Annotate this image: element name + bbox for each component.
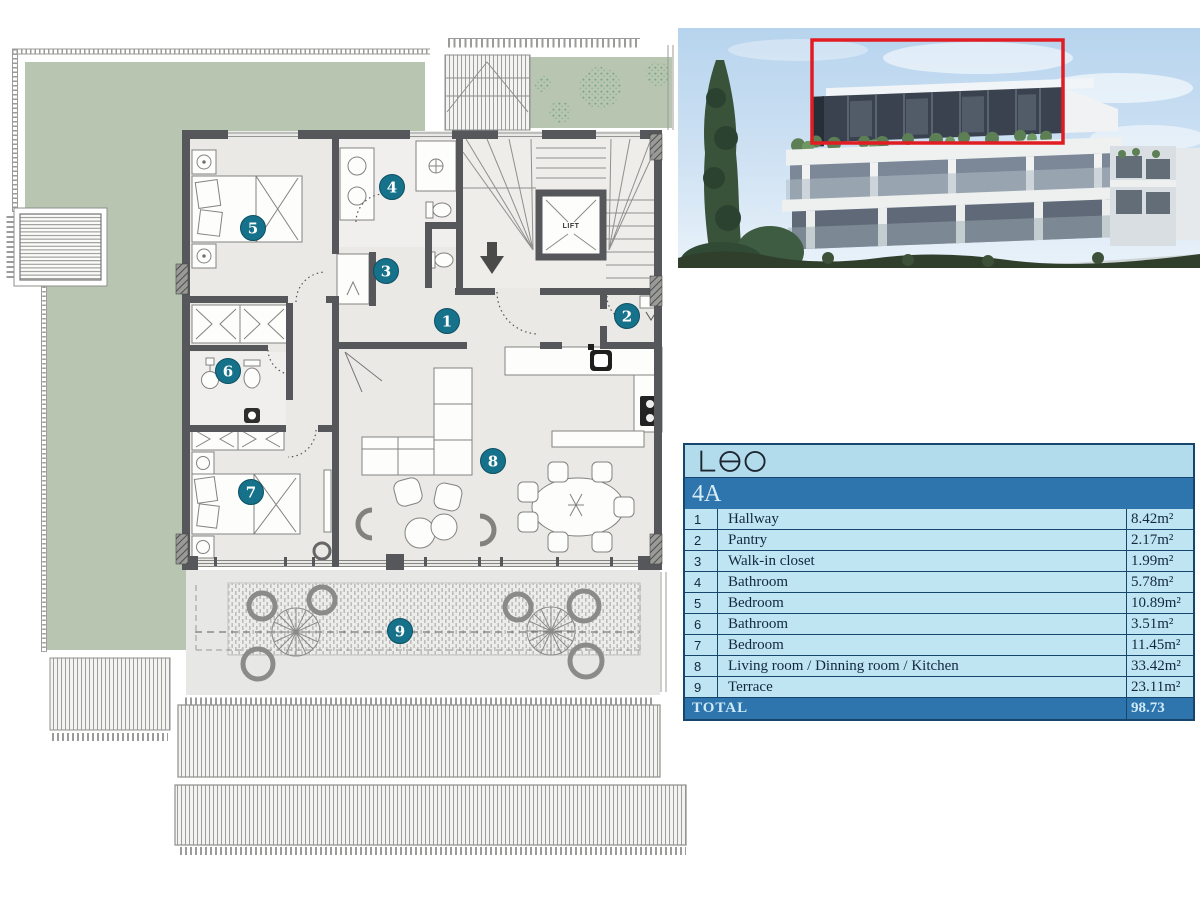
room-row: 1 Hallway 8.42m²: [685, 509, 1193, 530]
room-marker-number: 1: [442, 313, 452, 331]
room-name: Walk-in closet: [718, 551, 1126, 571]
unit-legend-table: 4A 1 Hallway 8.42m² 2 Pantry 2.17m² 3 Wa…: [683, 443, 1195, 721]
left-deck-band: [50, 658, 170, 737]
total-row: TOTAL 98.73: [685, 698, 1193, 719]
room-rows: 1 Hallway 8.42m² 2 Pantry 2.17m² 3 Walk-…: [685, 509, 1193, 698]
building: [782, 76, 1140, 250]
room-area: 8.42m²: [1126, 509, 1193, 529]
unit-label: 4A: [685, 478, 1193, 509]
room-marker-number: 4: [387, 179, 397, 197]
room-number: 3: [685, 551, 718, 571]
total-value: 98.73: [1126, 698, 1193, 719]
room-area: 10.89m²: [1126, 593, 1193, 613]
room-name: Bedroom: [718, 635, 1126, 655]
trellis: [445, 55, 530, 130]
room-number: 7: [685, 635, 718, 655]
room-row: 6 Bathroom 3.51m²: [685, 614, 1193, 635]
room-marker-number: 2: [622, 308, 632, 326]
room-area: 33.42m²: [1126, 656, 1193, 676]
pergola-bands: [175, 701, 686, 851]
room-number: 9: [685, 677, 718, 697]
room-number: 1: [685, 509, 718, 529]
room-row: 4 Bathroom 5.78m²: [685, 572, 1193, 593]
room-number: 6: [685, 614, 718, 634]
room-name: Pantry: [718, 530, 1126, 550]
room-area: 1.99m²: [1126, 551, 1193, 571]
room-marker-number: 7: [246, 484, 256, 502]
room-row: 9 Terrace 23.11m²: [685, 677, 1193, 698]
room-name: Terrace: [718, 677, 1126, 697]
room-marker-number: 6: [223, 363, 233, 381]
room-name: Bathroom: [718, 572, 1126, 592]
room-row: 8 Living room / Dinning room / Kitchen 3…: [685, 656, 1193, 677]
room-area: 11.45m²: [1126, 635, 1193, 655]
room-number: 2: [685, 530, 718, 550]
room-number: 4: [685, 572, 718, 592]
terrace-9: [186, 570, 660, 695]
room-name: Hallway: [718, 509, 1126, 529]
room-marker-number: 9: [395, 623, 405, 641]
room-row: 7 Bedroom 11.45m²: [685, 635, 1193, 656]
lift-label: LIFT: [563, 223, 580, 230]
floor-plan: LIFT 123456789: [0, 0, 690, 900]
building-photo: [678, 28, 1200, 268]
room-area: 3.51m²: [1126, 614, 1193, 634]
room-area: 5.78m²: [1126, 572, 1193, 592]
room-area: 2.17m²: [1126, 530, 1193, 550]
room-number: 5: [685, 593, 718, 613]
room-name: Living room / Dinning room / Kitchen: [718, 656, 1126, 676]
room-marker-number: 8: [488, 453, 498, 471]
room-name: Bedroom: [718, 593, 1126, 613]
room-number: 8: [685, 656, 718, 676]
logo-band: [685, 445, 1193, 478]
room-name: Bathroom: [718, 614, 1126, 634]
room-marker-number: 3: [381, 263, 391, 281]
brochure-page: LIFT 123456789: [0, 0, 1200, 900]
room-marker-number: 5: [248, 220, 258, 238]
room-row: 5 Bedroom 10.89m²: [685, 593, 1193, 614]
room-row: 2 Pantry 2.17m²: [685, 530, 1193, 551]
louver-platform: [10, 208, 107, 286]
total-label: TOTAL: [685, 698, 1126, 719]
room-row: 3 Walk-in closet 1.99m²: [685, 551, 1193, 572]
leo-logo-icon: [693, 448, 779, 474]
building-right-wing: [1110, 146, 1200, 246]
room-area: 23.11m²: [1126, 677, 1193, 697]
